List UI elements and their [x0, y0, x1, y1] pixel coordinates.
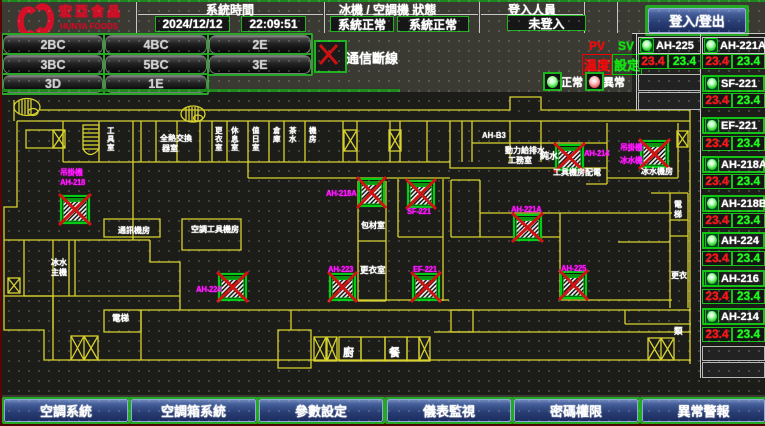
svg-text:主機: 主機: [51, 267, 67, 277]
svg-text:電梯: 電梯: [112, 313, 130, 323]
svg-text:通訊機房: 通訊機房: [118, 225, 150, 235]
svg-text:吊掛機: 吊掛機: [60, 167, 83, 177]
svg-text:宏亞食品: 宏亞食品: [59, 4, 123, 19]
svg-text:工具室: 工具室: [107, 126, 115, 152]
svg-text:更衣室: 更衣室: [215, 126, 223, 152]
svg-text:廚: 廚: [343, 345, 354, 359]
svg-text:AH-218: AH-218: [60, 178, 86, 187]
svg-text:AH-224: AH-224: [196, 285, 222, 294]
svg-text:AH-B3: AH-B3: [482, 131, 506, 140]
svg-text:吊掛機: 吊掛機: [620, 142, 643, 152]
svg-text:休息室: 休息室: [230, 125, 239, 152]
svg-text:梯: 梯: [674, 209, 682, 219]
svg-text:SF-221: SF-221: [407, 207, 432, 216]
svg-text:冰水機: 冰水機: [620, 155, 643, 165]
svg-text:AH-223: AH-223: [328, 265, 354, 274]
svg-text:類: 類: [673, 326, 683, 336]
svg-text:空調工具機房: 空調工具機房: [191, 224, 239, 234]
svg-text:倉庫: 倉庫: [272, 125, 281, 144]
svg-text:EF-221: EF-221: [413, 265, 438, 274]
svg-text:全熱交換: 全熱交換: [159, 133, 193, 143]
svg-text:AH-221A: AH-221A: [511, 205, 542, 214]
svg-text:包材室: 包材室: [360, 220, 385, 230]
svg-text:HUNYA FOODS: HUNYA FOODS: [60, 22, 119, 31]
svg-text:AH-218A: AH-218A: [326, 189, 357, 198]
svg-text:值日室: 值日室: [252, 125, 260, 152]
svg-text:工具機房配電: 工具機房配電: [553, 167, 601, 177]
svg-text:器室: 器室: [161, 143, 178, 153]
svg-text:更衣: 更衣: [671, 270, 687, 280]
svg-text:機房: 機房: [309, 125, 317, 144]
svg-text:工務室: 工務室: [508, 155, 532, 165]
svg-text:AH-225: AH-225: [561, 264, 587, 273]
svg-text:冰水: 冰水: [51, 257, 68, 267]
svg-text:冰水機房: 冰水機房: [641, 166, 673, 176]
svg-text:AH-214: AH-214: [584, 149, 610, 158]
svg-text:茶水: 茶水: [288, 125, 297, 144]
svg-text:電: 電: [674, 199, 682, 209]
svg-text:更衣室: 更衣室: [360, 265, 386, 275]
svg-text:餐: 餐: [388, 345, 401, 359]
svg-text:純水: 純水: [540, 150, 559, 161]
